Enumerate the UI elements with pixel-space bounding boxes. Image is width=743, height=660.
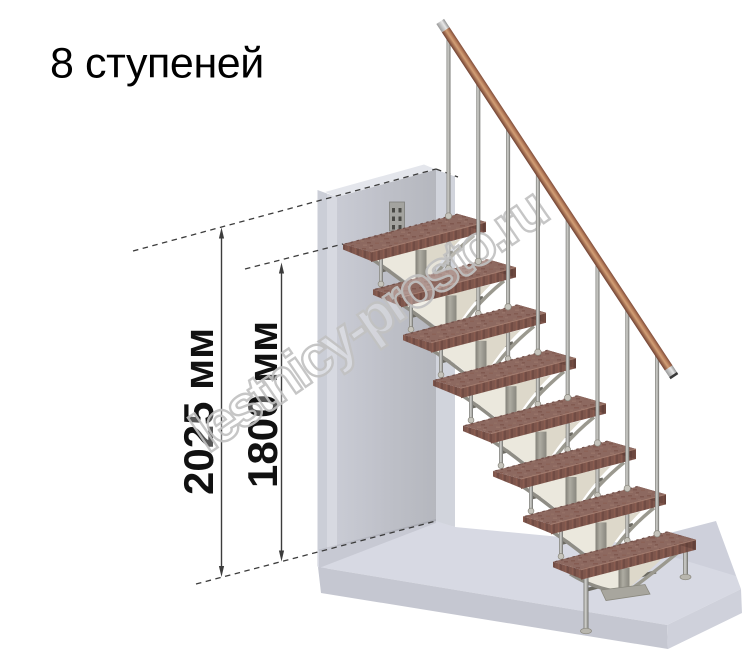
svg-text:8 ступеней: 8 ступеней: [50, 40, 264, 88]
